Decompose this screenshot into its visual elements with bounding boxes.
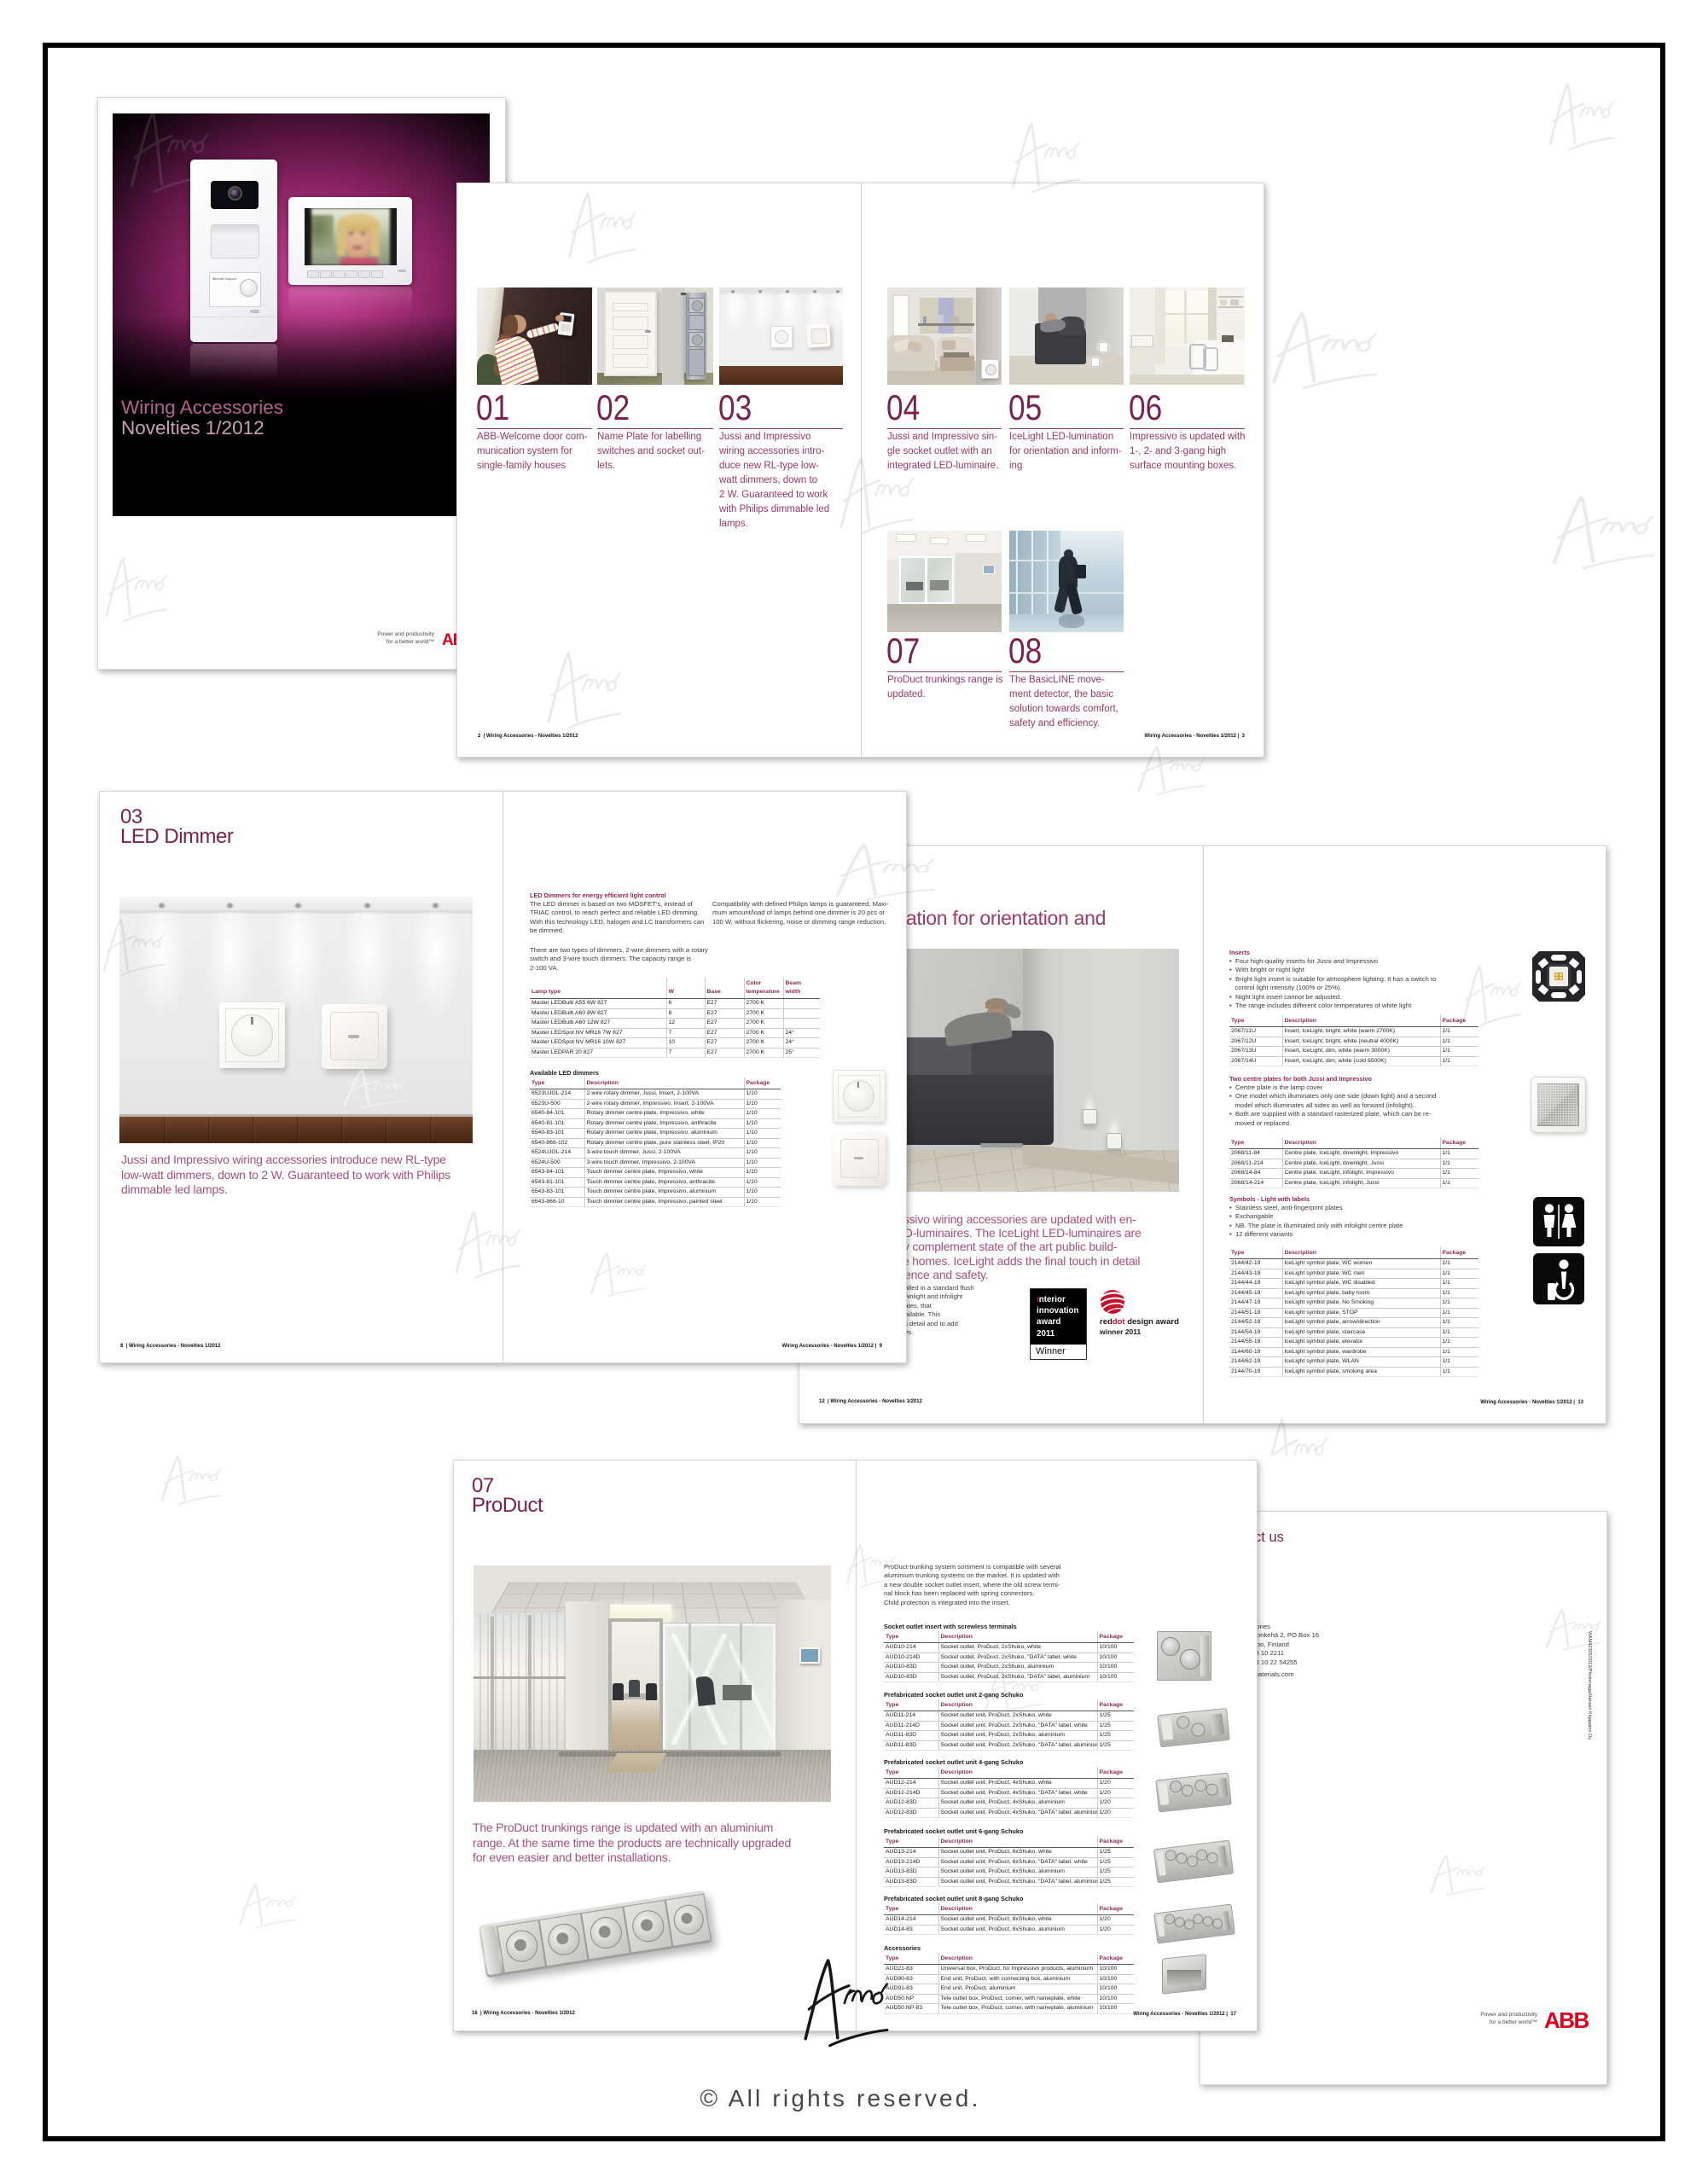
svg-text:ABB: ABB: [1545, 2011, 1589, 2031]
